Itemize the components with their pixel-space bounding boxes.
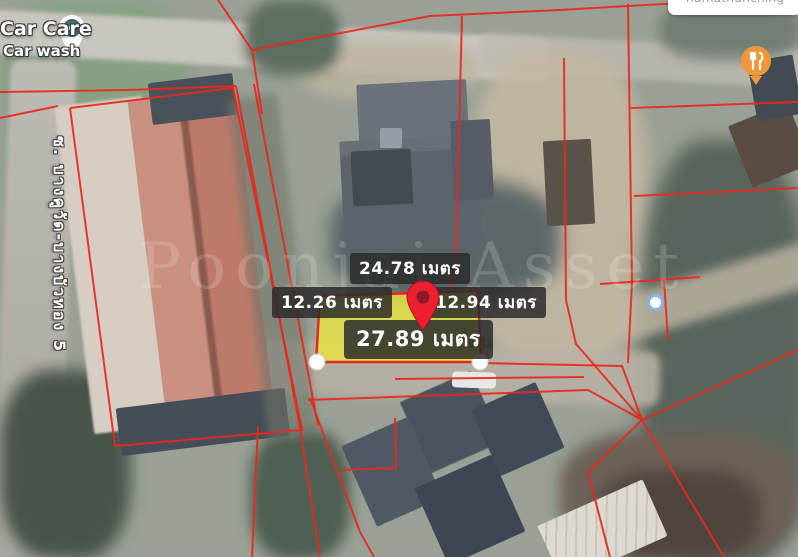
house-roof — [450, 119, 494, 201]
shed-roof — [543, 139, 595, 226]
vehicle — [452, 371, 497, 389]
road-name-label: ซ. บางคูวัด-บางบัวทอง 5 — [46, 136, 71, 353]
satellite-map[interactable]: Poonjai Asset ที่ดิน 24.78 เมตร 12.26 เม… — [0, 0, 798, 557]
small-poi-dot-icon[interactable] — [647, 294, 664, 311]
measurement-label-left: 12.26 เมตร — [272, 287, 392, 318]
vegetation-patch — [250, 430, 350, 557]
vegetation-patch — [245, 0, 340, 75]
poi-label-car-care[interactable]: Car Care — [0, 18, 92, 40]
restaurant-pin-icon[interactable] — [739, 44, 773, 86]
skylight — [380, 128, 402, 148]
parcel-red-map-pin-icon[interactable] — [403, 280, 443, 332]
house-roof-dark — [351, 148, 414, 206]
measurement-label-right: 12.94 เมตร — [426, 287, 546, 318]
poi-card-clipped[interactable]: namatnunching — [668, 0, 798, 15]
poi-label-car-wash[interactable]: Car wash — [3, 42, 80, 60]
